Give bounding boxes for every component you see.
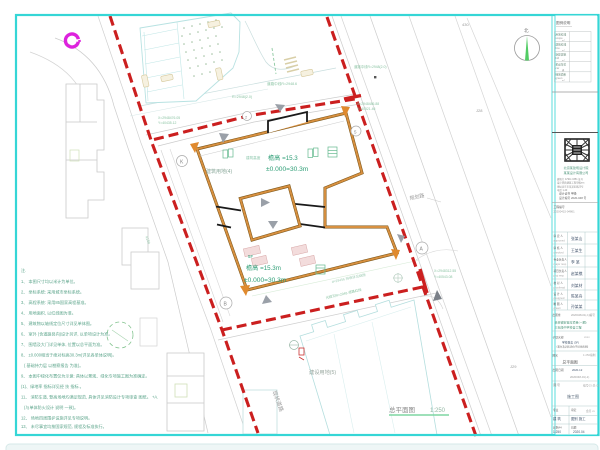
svg-text:3、 高程系统: 采用85国家高程基准。: 3、 高程系统: 采用85国家高程基准。 <box>21 299 89 305</box>
svg-text:陈某舟: 陈某舟 <box>571 294 583 299</box>
svg-text:建 筑: 建 筑 <box>553 416 561 421</box>
svg-text:6、 室外 (含道路竖向)设计另详, 以单项设计为: 6、 室外 (含道路竖向)设计另详, 以单项设计为准。 <box>21 331 112 337</box>
svg-text:2020-12: 2020-12 <box>572 368 583 372</box>
svg-text:J29: J29 <box>510 364 517 369</box>
svg-text:m²: m² <box>562 79 565 82</box>
svg-text:xxxx: xxxx <box>584 335 590 339</box>
svg-text:道路中线R=2948.6: 道路中线R=2948.6 <box>267 81 297 86</box>
svg-text:制 图 人: 制 图 人 <box>554 302 564 306</box>
svg-text:9、 本图中绿化布置仅为示意: 具体以景观、绿化专项施工图: 9、 本图中绿化布置仅为示意: 具体以景观、绿化专项施工图为准确定。 <box>21 373 150 379</box>
svg-text:X=2948486.88: X=2948486.88 <box>357 102 379 106</box>
svg-text:工程编号: 工程编号 <box>554 205 565 209</box>
svg-text:赵某樵: 赵某樵 <box>571 271 583 276</box>
svg-text:Y=40543.08: Y=40543.08 <box>434 275 452 279</box>
svg-text:bld: bld <box>556 56 560 60</box>
svg-text:X=2948476.05: X=2948476.05 <box>158 116 180 120</box>
svg-text:建筑用地(4): 建筑用地(4) <box>206 168 232 175</box>
svg-text:出图章: 出图章 <box>553 313 561 317</box>
svg-text:4、 用地面积, 以红线图为准。: 4、 用地面积, 以红线图为准。 <box>21 310 76 316</box>
svg-text:±0.000=30.3m: ±0.000=30.3m <box>266 166 309 173</box>
svg-text:建筑行 A7911 0351 证号: 建筑行 A7911 0351 证号 <box>557 177 584 181</box>
svg-text:(看台及训练场位于场地南侧): (看台及训练场位于场地南侧) <box>557 345 589 349</box>
svg-text:designed: designed <box>554 296 565 300</box>
svg-text:major resp: major resp <box>554 262 567 266</box>
svg-text:设计编号 2020-048 号: 设计编号 2020-048 号 <box>559 196 587 200</box>
svg-text:图例说明: 图例说明 <box>556 20 571 25</box>
svg-text:刘某材: 刘某材 <box>571 283 583 288</box>
svg-text:m²: m² <box>562 59 565 62</box>
svg-text:子项名称: 子项名称 <box>553 336 564 340</box>
svg-text:drawn: drawn <box>554 306 562 310</box>
svg-text:道路中线R=2948(2.0): 道路中线R=2948(2.0) <box>354 64 387 69</box>
svg-text:图 号: 图 号 <box>554 383 561 387</box>
svg-text:(与单体防火设计 说明 一致)。: (与单体防火设计 说明 一致)。 <box>24 404 78 410</box>
svg-text:檐高 =15.3m: 檐高 =15.3m <box>246 264 281 272</box>
svg-text:Y=40435.12: Y=40435.12 <box>158 121 176 125</box>
svg-text:注.: 注. <box>21 267 26 273</box>
svg-text:北: 北 <box>524 27 529 34</box>
svg-text:三标段中学校舍工程: 三标段中学校舍工程 <box>555 325 582 330</box>
svg-text:设 计 人: 设 计 人 <box>554 292 564 296</box>
svg-text:某某设计有限公司: 某某设计有限公司 <box>564 170 589 175</box>
svg-text:approved: approved <box>554 239 566 243</box>
svg-text:日期: 日期 <box>571 426 577 430</box>
svg-text:图别 施工: 图别 施工 <box>571 416 586 421</box>
svg-text:1:250: 1:250 <box>553 430 561 434</box>
svg-text:proofread: proofread <box>554 286 566 290</box>
svg-text:2、 坐标系统: 采用城市坐标系统。: 2、 坐标系统: 采用城市坐标系统。 <box>21 289 84 295</box>
svg-text:孙某某: 孙某某 <box>571 304 583 309</box>
svg-text:±0.000=30.3m: ±0.000=30.3m <box>244 277 287 284</box>
svg-text:m²: m² <box>562 39 565 42</box>
svg-text:总平面图: 总平面图 <box>563 360 578 365</box>
svg-text:430: 430 <box>462 22 469 27</box>
svg-text:图名: 图名 <box>553 354 559 358</box>
svg-text:m²: m² <box>562 49 565 52</box>
svg-text:checked: checked <box>554 251 565 255</box>
svg-text:R=2948(2.0): R=2948(2.0) <box>232 95 252 99</box>
svg-text:建筑高度: 建筑高度 <box>246 155 261 160</box>
svg-text:(1)、绿地率 指标详见经 技 指标 。: (1)、绿地率 指标详见经 技 指标 。 <box>21 383 84 389</box>
svg-text:+A.: +A. <box>152 395 158 400</box>
svg-text:审 核 人: 审 核 人 <box>554 246 564 250</box>
svg-text:X=2948312.55: X=2948312.55 <box>434 269 456 273</box>
svg-text:项目负责人: 项目负责人 <box>554 269 568 273</box>
svg-text:5、 建筑物以轴线定位尺寸详见单体图。: 5、 建筑物以轴线定位尺寸详见单体图。 <box>21 320 94 326</box>
svg-text:檐高 =15.3: 檐高 =15.3 <box>268 154 298 162</box>
svg-text:总平面图: 总平面图 <box>389 405 415 414</box>
svg-text:Y=40521.46: Y=40521.46 <box>357 107 375 111</box>
svg-text:专业负责人: 专业负责人 <box>554 258 568 262</box>
svg-text:某某镇安置房项目(一期): 某某镇安置房项目(一期) <box>555 320 587 325</box>
svg-text:11、 消防车道, 登高场地均满足规范, 具体详见消防: 11、 消防车道, 登高场地均满足规范, 具体详见消防设计专项审查 图纸。 <box>21 394 151 400</box>
svg-text:施工图: 施工图 <box>567 393 579 399</box>
svg-text:会签 xx: 会签 xx <box>586 409 595 413</box>
svg-text:比例A4: 比例A4 <box>553 426 562 430</box>
svg-text:1、 本图尺寸均以米计为单位。: 1、 本图尺寸均以米计为单位。 <box>21 278 78 284</box>
svg-text:( 基础持力层 以勘察报告 为准)。: ( 基础持力层 以勘察报告 为准)。 <box>24 362 83 368</box>
svg-text:李 某: 李 某 <box>571 260 580 265</box>
svg-text:建设用地(5): 建设用地(5) <box>309 368 336 376</box>
svg-text:20200415-04861: 20200415-04861 <box>554 210 576 214</box>
svg-text:2020048-01(-1): 2020048-01(-1) <box>570 375 589 379</box>
svg-text:12、 场地四周围护设施详见专项说明。: 12、 场地四周围护设施详见专项说明。 <box>21 415 92 421</box>
svg-text:王某生: 王某生 <box>571 248 583 253</box>
svg-text:13、 未尽事宜均按国家规范, 规程及标准执行。: 13、 未尽事宜均按国家规范, 规程及标准执行。 <box>21 423 107 429</box>
svg-text:张某山: 张某山 <box>571 236 583 241</box>
svg-text:北京某建筑设计院: 北京某建筑设计院 <box>564 165 589 170</box>
svg-text:1:250编制: 1:250编制 <box>583 353 596 357</box>
svg-text:编号03-总-01: 编号03-总-01 <box>583 384 600 388</box>
svg-text:学校教舍 (3F): 学校教舍 (3F) <box>562 341 579 345</box>
svg-text:出图日期: 出图日期 <box>553 368 564 372</box>
svg-text:7、 围墙及大门详见单体, 位置以总平面为准。: 7、 围墙及大门详见单体, 位置以总平面为准。 <box>21 341 104 347</box>
svg-text:审 定 人: 审 定 人 <box>554 234 564 238</box>
svg-text:line: line <box>556 46 561 50</box>
svg-text:5F: 5F <box>248 254 253 259</box>
svg-text:proj resp: proj resp <box>554 274 565 278</box>
svg-text:专业: 专业 <box>553 408 559 412</box>
svg-text:J28: J28 <box>476 108 483 113</box>
svg-text:审定: 审定 <box>571 408 577 412</box>
svg-text:地址北京市某某区路20号: 地址北京市某某区路20号 <box>557 184 584 188</box>
svg-text:1:250: 1:250 <box>430 408 446 414</box>
svg-text:设计资质建筑工程甲级xxx: 设计资质建筑工程甲级xxx <box>557 181 585 185</box>
svg-text:校 对 人: 校 对 人 <box>554 281 564 285</box>
svg-text:2020048-01(-1)编号: 2020048-01(-1)编号 <box>571 313 595 317</box>
svg-text:2020.04: 2020.04 <box>573 430 585 434</box>
svg-text:car: car <box>556 66 560 70</box>
svg-text:8、 ±0.000相当于绝对标高30.3m(详见各单体说明): 8、 ±0.000相当于绝对标高30.3m(详见各单体说明)。 <box>21 352 117 358</box>
